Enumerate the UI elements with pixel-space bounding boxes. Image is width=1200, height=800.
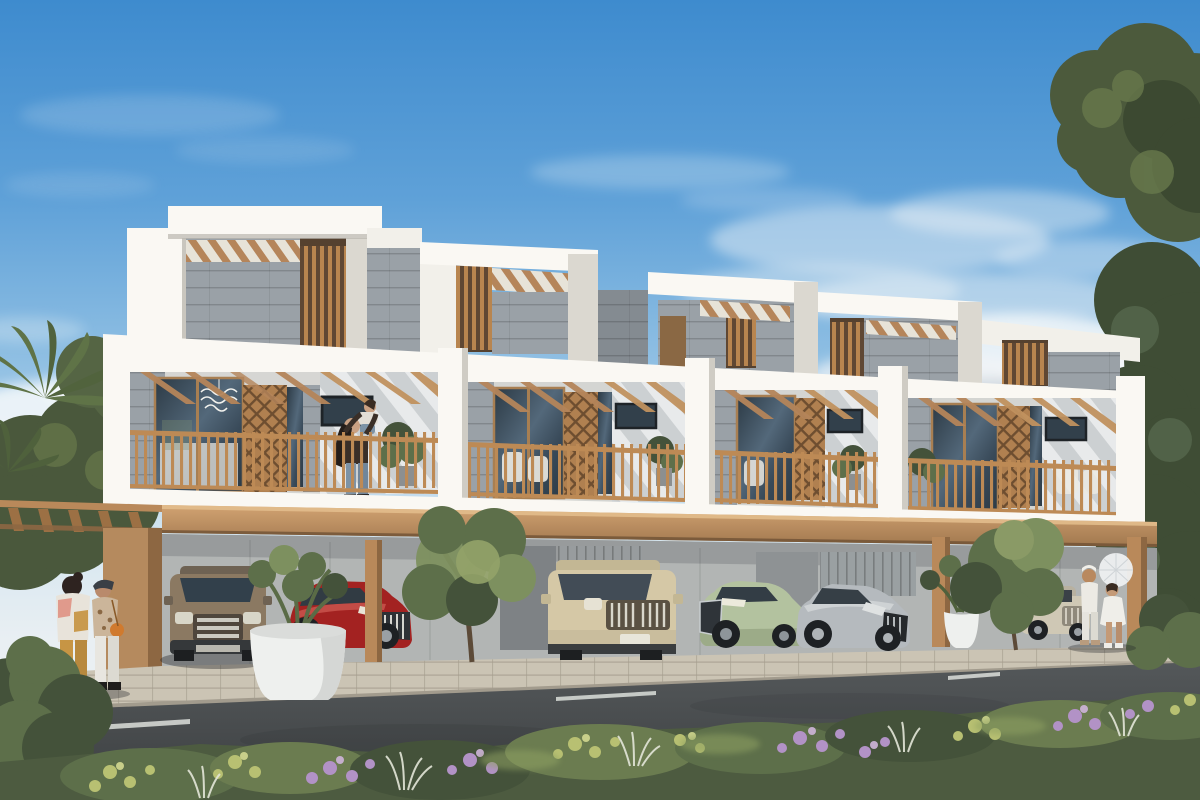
balcony-unit-2 [468,382,685,502]
architectural-render: Daytime architectural rendering of a row… [0,0,1200,800]
render-canvas [0,0,1200,800]
balcony-unit-1 [130,372,438,499]
balcony-unit-4 [908,398,1116,516]
roof-pergola-slats [186,240,300,262]
post-left [365,540,382,662]
suv-champagne [541,560,683,660]
small-window [616,404,656,428]
wood-louvers [300,246,346,356]
balcony-unit-3 [715,390,878,508]
wood-louvers [456,266,492,350]
